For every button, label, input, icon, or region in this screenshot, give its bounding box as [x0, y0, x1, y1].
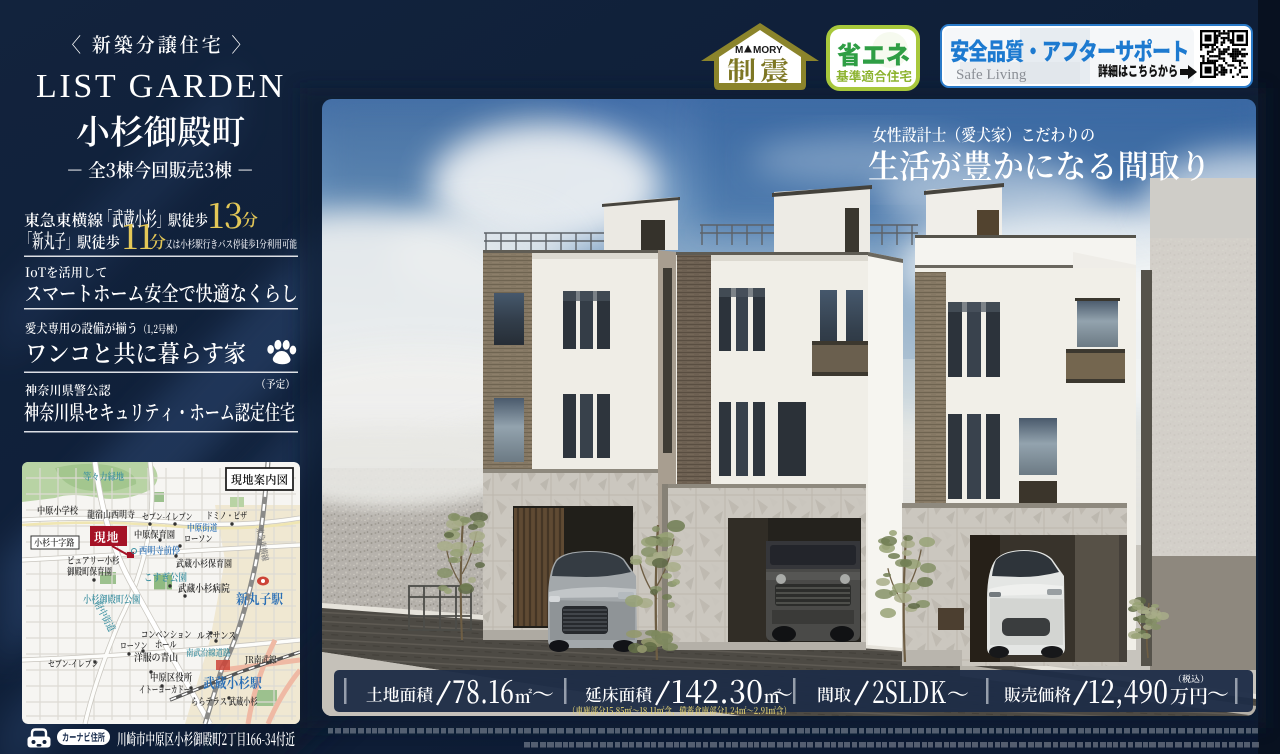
svg-text:Safe Living: Safe Living [956, 67, 1027, 83]
svg-text:LIST GARDEN: LIST GARDEN [36, 68, 286, 105]
svg-text:M: M [735, 45, 743, 56]
svg-text:MORY: MORY [753, 45, 783, 56]
